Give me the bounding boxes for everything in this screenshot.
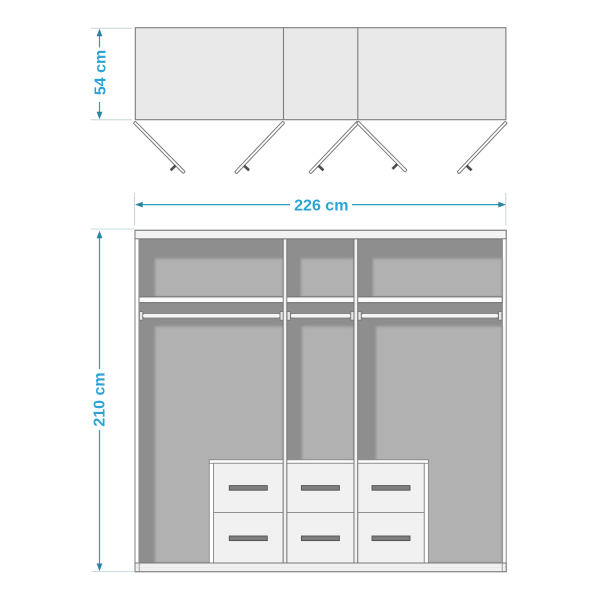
svg-text:210 cm: 210 cm bbox=[91, 372, 108, 426]
svg-text:54 cm: 54 cm bbox=[93, 50, 110, 95]
svg-text:226 cm: 226 cm bbox=[294, 197, 348, 214]
